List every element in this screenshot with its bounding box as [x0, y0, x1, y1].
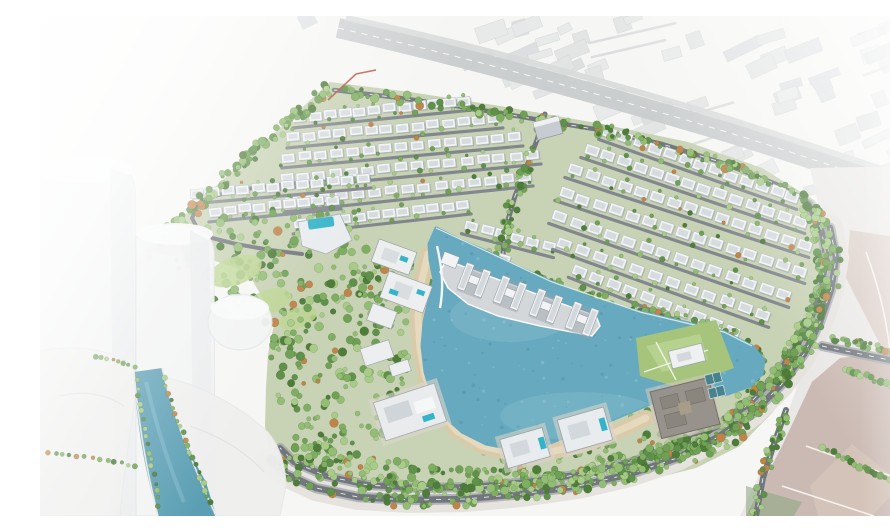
fade-right-edge: [40, 16, 890, 516]
masterplan-aerial-render: [40, 16, 890, 516]
